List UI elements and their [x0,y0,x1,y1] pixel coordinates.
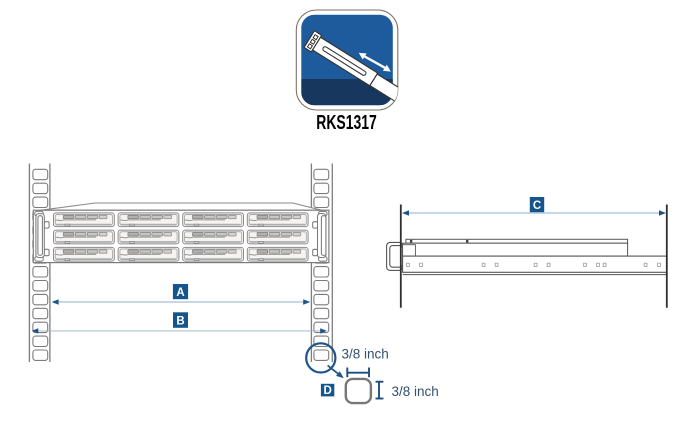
svg-text:3/8 inch: 3/8 inch [342,346,389,361]
svg-text:B: B [176,316,184,328]
svg-text:3/8 inch: 3/8 inch [392,384,439,399]
svg-text:A: A [176,287,184,299]
svg-text:D: D [323,385,331,397]
svg-text:RKS1317: RKS1317 [316,111,377,134]
svg-text:C: C [533,200,541,212]
